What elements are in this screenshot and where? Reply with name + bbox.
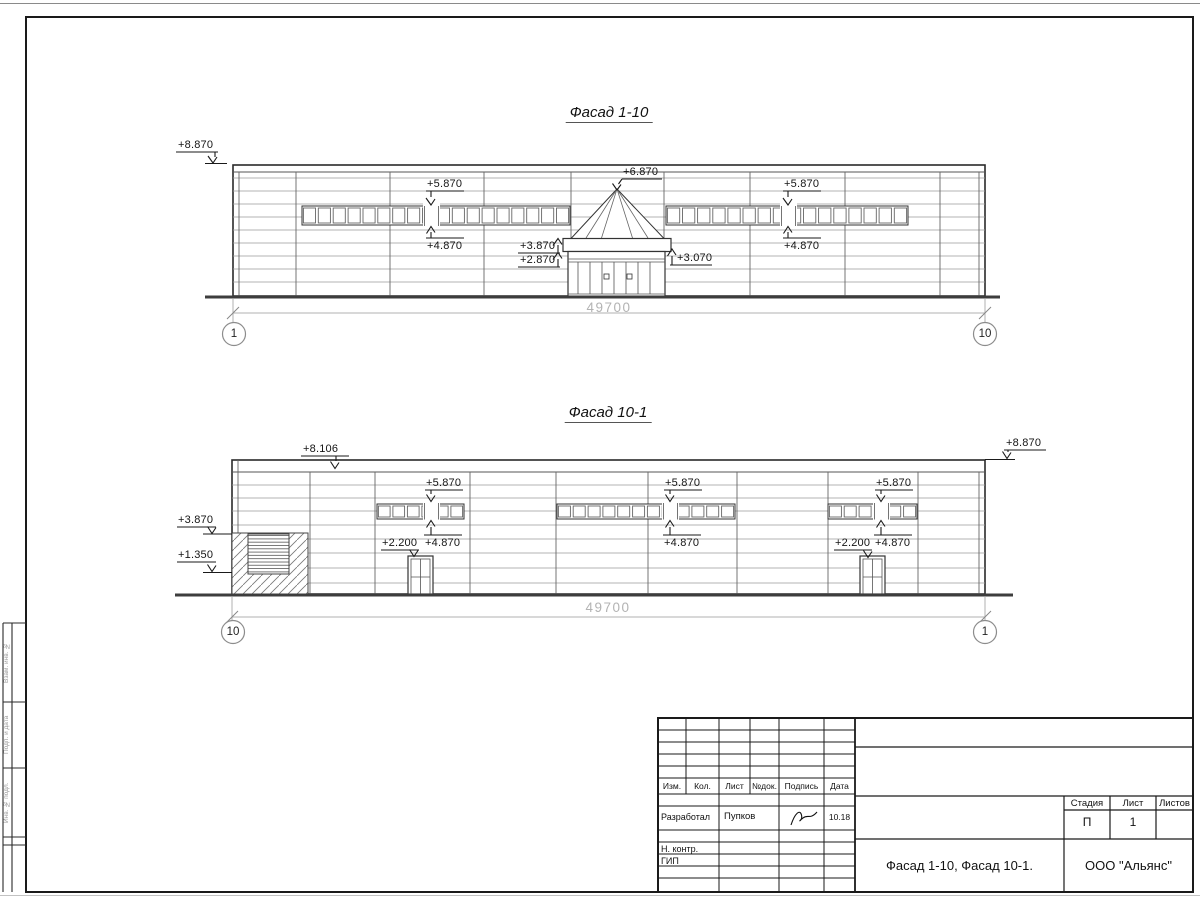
- elevation-label: +2.200: [382, 537, 417, 549]
- col-header-ndok: №док.: [750, 781, 779, 792]
- developed-role: Разработал: [661, 812, 710, 823]
- elevation-label: +8.870: [178, 139, 213, 151]
- elevation-label: +5.870: [427, 178, 462, 190]
- elevation-label: +1.350: [178, 549, 213, 561]
- drawing-linework: [0, 0, 1200, 900]
- elevation-label: +3.870: [178, 514, 213, 526]
- elevation-label: +4.870: [427, 240, 462, 252]
- facade-10-1-title: Фасад 10-1: [565, 404, 652, 423]
- col-header-data: Дата: [824, 781, 855, 792]
- elevation-label: +4.870: [875, 537, 910, 549]
- facade-1-10-title: Фасад 1-10: [566, 104, 653, 123]
- ncontr-role: Н. контр.: [661, 844, 698, 855]
- developed-date: 10.18: [824, 812, 855, 823]
- elevation-label: +2.870: [520, 254, 555, 266]
- canopy: [563, 239, 671, 252]
- stage-header: Стадия: [1064, 798, 1110, 809]
- elevation-label: +5.870: [876, 477, 911, 489]
- document-title: Фасад 1-10, Фасад 10-1.: [855, 858, 1064, 873]
- facade-10-1-building: [232, 460, 985, 594]
- drawing-sheet: Фасад 1-10 +8.870 +5.870 +6.870 +5.870 +…: [0, 0, 1200, 900]
- elevation-label: +8.870: [1006, 437, 1041, 449]
- vestibule: [568, 252, 665, 297]
- overall-dimension: 49700: [586, 301, 631, 315]
- elevation-label: +4.870: [425, 537, 460, 549]
- elevation-label: +5.870: [784, 178, 819, 190]
- col-header-podpis: Подпись: [779, 781, 824, 792]
- sheet-value: 1: [1110, 817, 1156, 828]
- elevation-label: +5.870: [426, 477, 461, 489]
- door-right: [860, 556, 885, 594]
- col-header-list: Лист: [719, 781, 750, 792]
- side-stamp-label: Инв. № подл.: [2, 768, 11, 837]
- elevation-label: +3.070: [677, 252, 712, 264]
- elevation-label: +5.870: [665, 477, 700, 489]
- elevation-label: +3.870: [520, 240, 555, 252]
- company-name: ООО "Альянс": [1064, 858, 1193, 873]
- elevation-label: +8.106: [303, 443, 338, 455]
- overall-dimension: 49700: [585, 601, 630, 615]
- stage-value: П: [1064, 817, 1110, 828]
- gip-role: ГИП: [661, 856, 679, 867]
- elevation-label: +4.870: [664, 537, 699, 549]
- axis-number: 10: [973, 327, 997, 341]
- elevation-label: +2.200: [835, 537, 870, 549]
- axis-number: 10: [221, 625, 245, 639]
- axis-number: 1: [222, 327, 246, 341]
- door-left: [408, 556, 433, 594]
- sheet-header: Лист: [1110, 798, 1156, 809]
- side-stamp-label: Подп. и дата: [2, 702, 11, 768]
- elevation-label: +6.870: [623, 166, 658, 178]
- louver-grille: [248, 534, 289, 574]
- col-header-izm: Изм.: [658, 781, 686, 792]
- sheets-header: Листов: [1156, 798, 1193, 809]
- side-stamp-label: Взам. инв. №: [2, 623, 11, 702]
- col-header-kol: Кол.: [686, 781, 719, 792]
- developed-name: Пупков: [724, 811, 755, 822]
- axis-number: 1: [973, 625, 997, 639]
- elevation-label: +4.870: [784, 240, 819, 252]
